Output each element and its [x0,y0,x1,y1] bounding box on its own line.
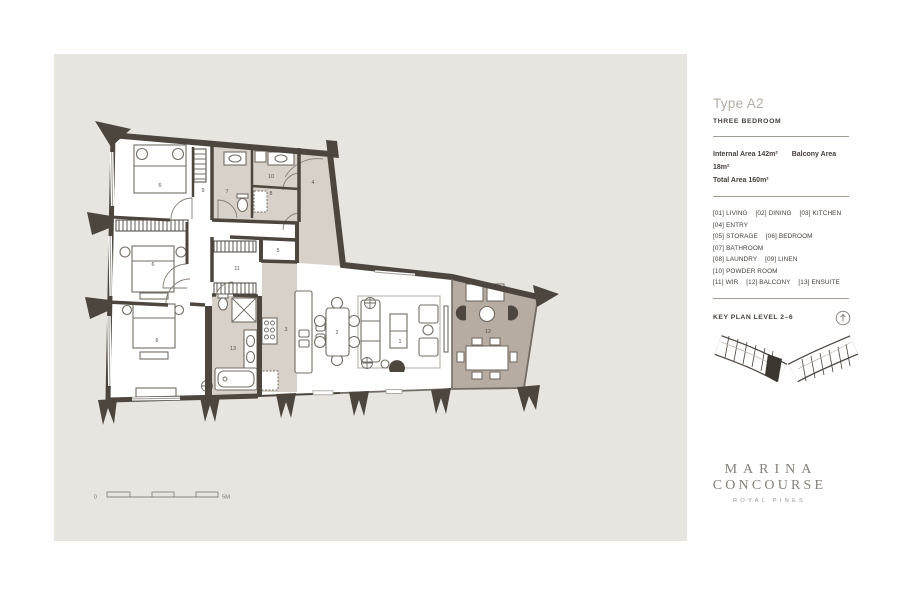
room-label-entry: 4 [312,180,315,186]
key-plan-highlighted-unit [765,354,782,382]
room-label-bedroom-1: 6 [159,183,162,189]
room-label-linen: 9 [202,188,205,194]
legend-item: [06]BEDROOM [766,233,813,240]
key-plan-right-wing [793,342,854,381]
scale-end-label: 5M [222,495,230,501]
room-label-ensuite: 13 [230,346,236,352]
legend-item: [07]BATHROOM [713,245,763,252]
key-plan-left-wing [718,336,782,382]
legend-line: [05]STORAGE [06]BEDROOM [07]BATHROOM [713,231,851,254]
key-plan-diagram [713,330,875,390]
logo-subtitle: ROYAL PINES [688,498,848,504]
room-label-kitchen: 3 [285,327,288,333]
legend-item: [05]STORAGE [713,233,758,240]
divider [713,298,849,299]
legend-line: [01]LIVING [02]DINING [03]KITCHEN [04]EN… [713,208,851,231]
legend-item: [10]POWDER ROOM [713,268,778,275]
room-label-laundry: 8 [270,191,273,197]
unit-type-title: Type A2 [713,96,851,111]
scale-bar: 0 5M [94,492,230,501]
unit-subtitle: THREE BEDROOM [713,118,851,125]
room-label-balcony: 12 [485,329,491,335]
legend-item: [09]LINEN [765,256,797,263]
legend-item: [02]DINING [756,210,792,217]
scale-zero-label: 0 [94,495,97,501]
legend-item: [13]ENSUITE [798,279,839,286]
floorplan-drawing: 1 2 3 4 5 6 6 6 7 8 9 10 11 12 13 0 5M [54,54,687,541]
internal-area: Internal Area 142m² [713,151,778,158]
legend-item: [01]LIVING [713,210,748,217]
divider [713,196,849,197]
area-summary: Internal Area 142m²Balcony Area 18m² Tot… [713,148,851,187]
room-label-bedroom-3: 6 [156,338,159,344]
logo-line-2: CONCOURSE [688,478,848,494]
laundry-appliance [254,191,267,212]
room-label-wir: 11 [234,266,240,272]
room-label-powder-room: 10 [268,174,274,180]
divider [713,136,849,137]
room-label-dining: 2 [336,330,339,336]
room-label-bedroom-2: 6 [152,262,155,268]
room-label-bathroom: 7 [226,189,229,195]
legend-line: [08]LAUNDRY [09]LINEN [10]POWDER ROOM [713,254,851,277]
legend-line: [11]WIR [12]BALCONY [13]ENSUITE [713,277,851,289]
legend-item: [11]WIR [713,279,738,286]
brochure-page: 1 2 3 4 5 6 6 6 7 8 9 10 11 12 13 0 5M T… [0,0,900,600]
room-legend: [01]LIVING [02]DINING [03]KITCHEN [04]EN… [713,208,851,289]
info-sidebar: Type A2 THREE BEDROOM Internal Area 142m… [713,96,851,390]
room-label-living: 1 [399,339,402,345]
total-area: Total Area 160m² [713,177,769,184]
legend-item: [03]KITCHEN [799,210,841,217]
north-arrow-icon [835,310,851,326]
legend-item: [04]ENTRY [713,222,748,229]
legend-item: [08]LAUNDRY [713,256,757,263]
legend-item: [12]BALCONY [746,279,790,286]
key-plan-header: KEY PLAN LEVEL 2–6 [713,310,851,326]
logo-line-1: MARINA [688,462,848,478]
key-plan-label: KEY PLAN LEVEL 2–6 [713,310,793,321]
room-label-storage: 5 [277,248,280,254]
brand-logo: MARINA CONCOURSE ROYAL PINES [688,462,848,504]
